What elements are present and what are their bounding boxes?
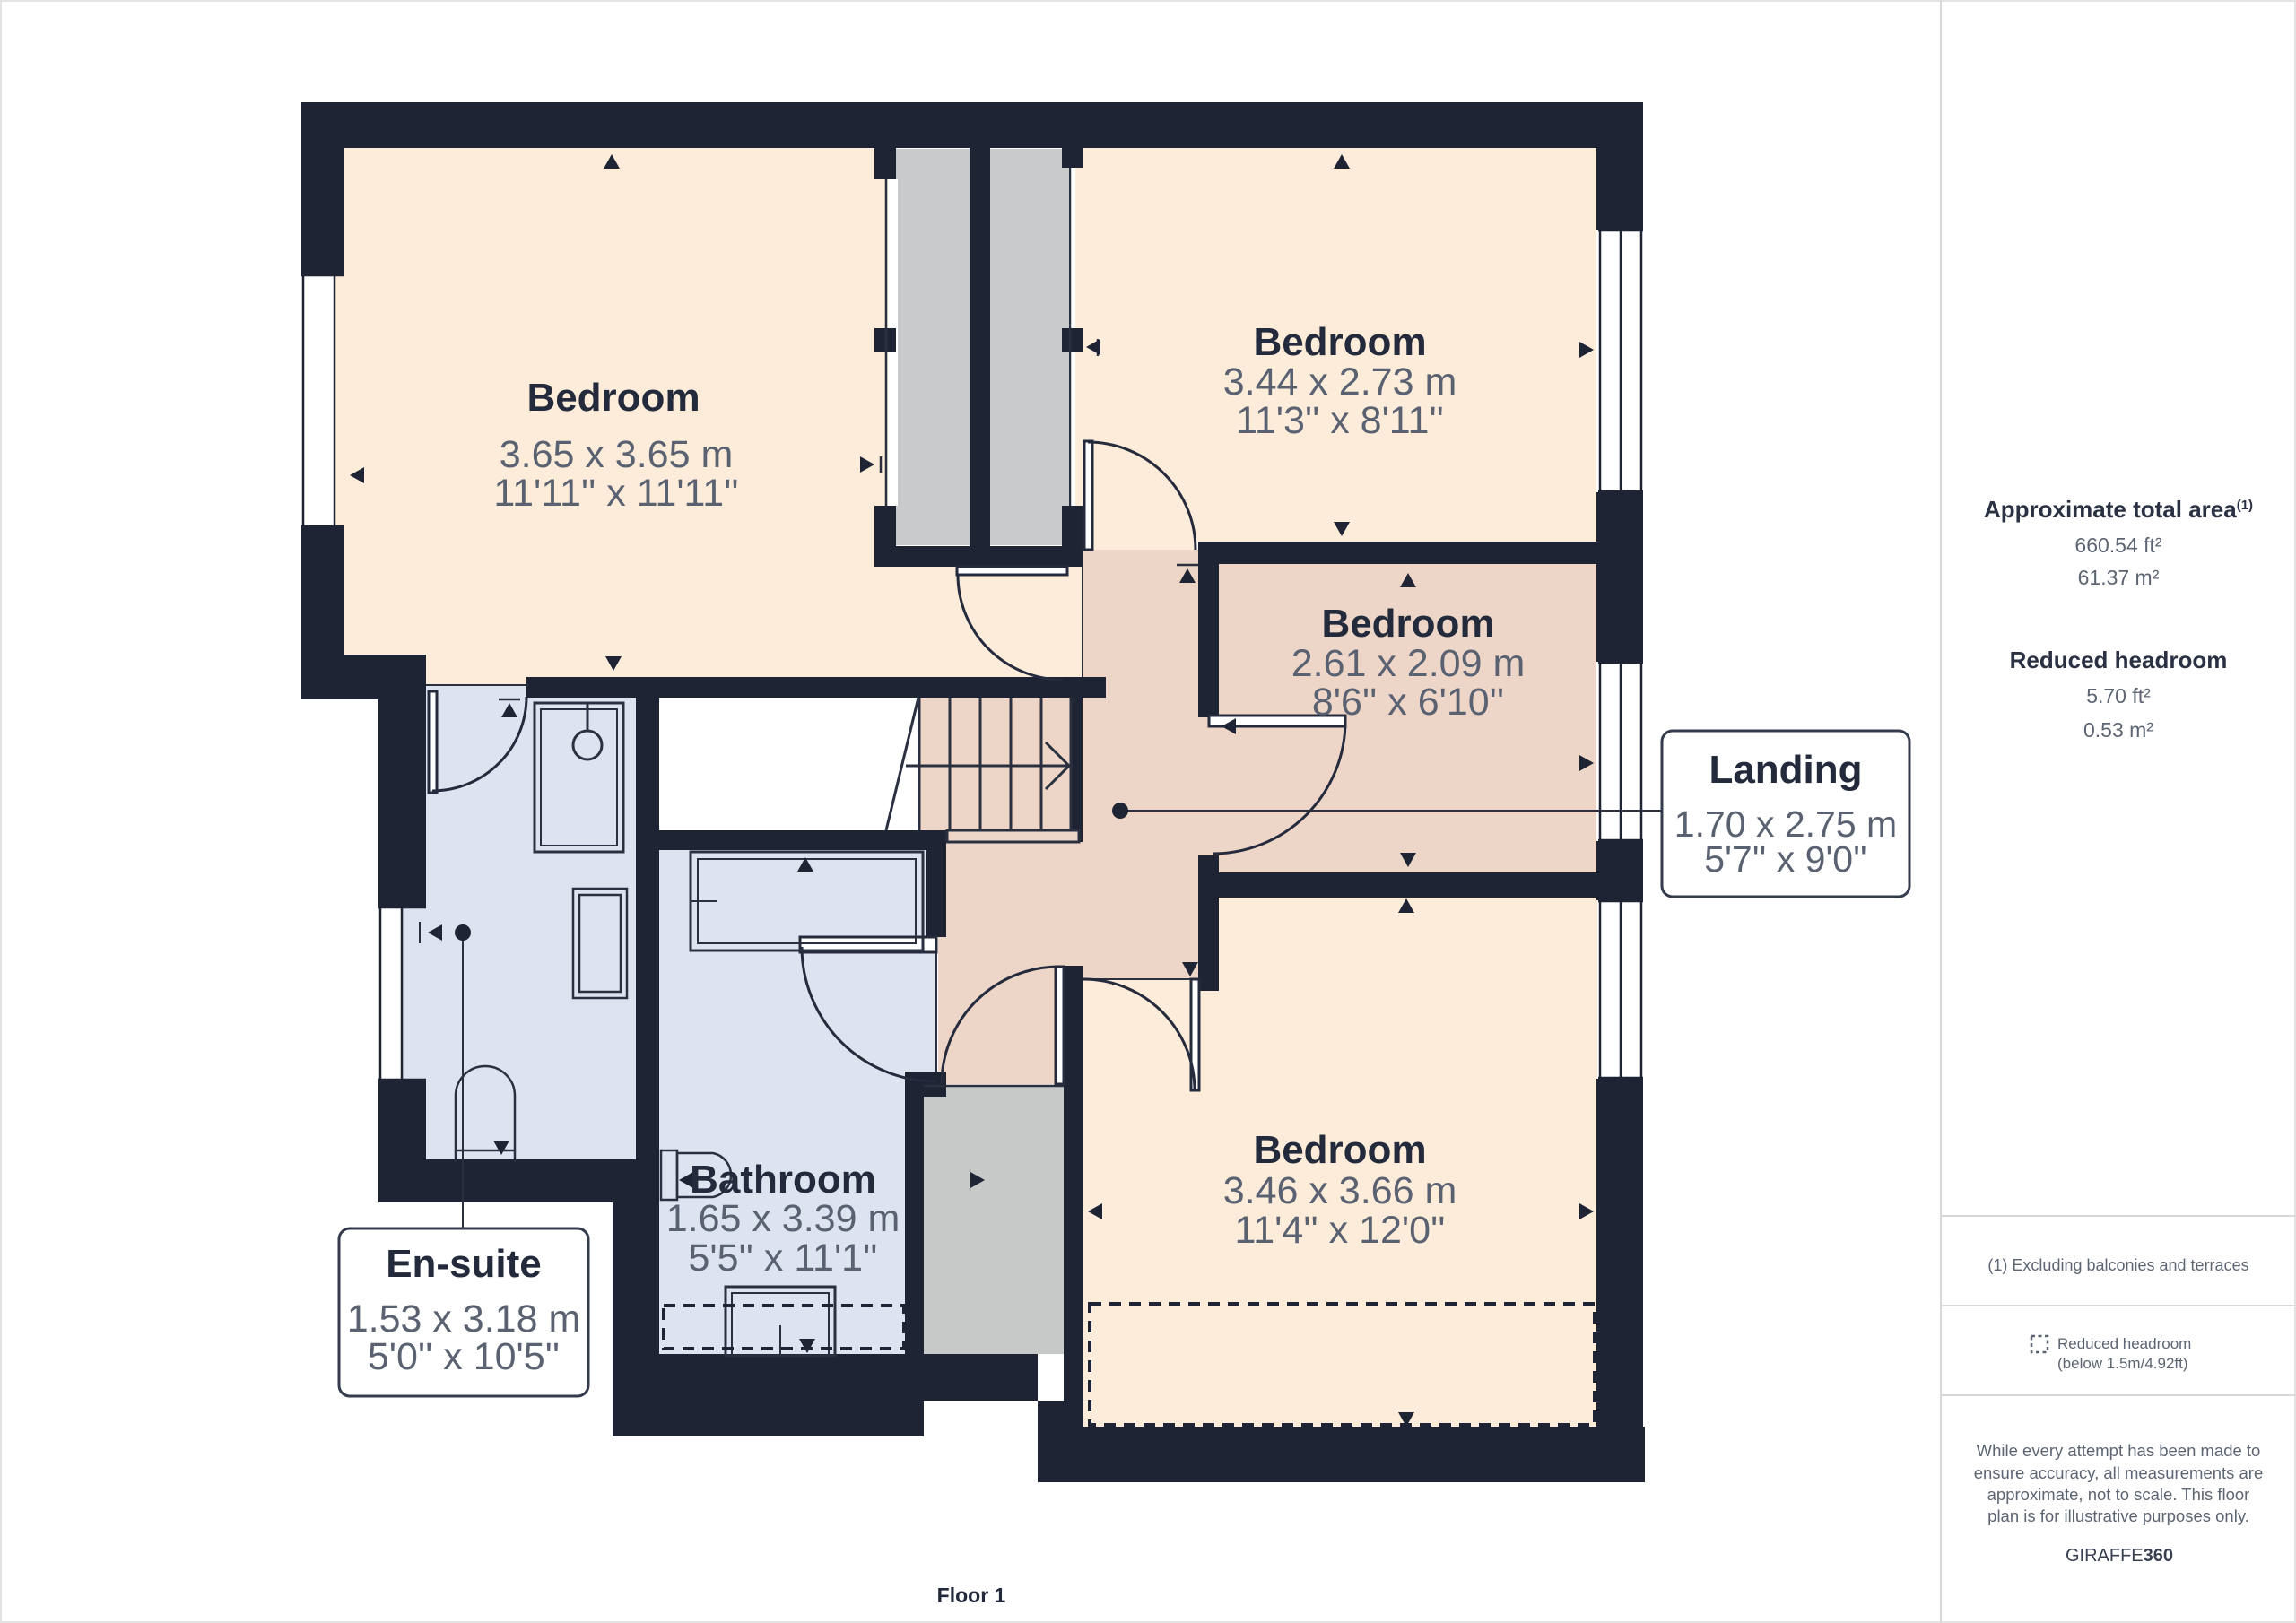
svg-text:5.70 ft²: 5.70 ft² <box>2086 684 2151 707</box>
svg-text:En-suite: En-suite <box>386 1242 542 1286</box>
svg-text:While every attempt has been m: While every attempt has been made to <box>1977 1441 2261 1460</box>
svg-text:GIRAFFE360: GIRAFFE360 <box>2066 1546 2173 1566</box>
svg-text:Bedroom: Bedroom <box>526 376 700 420</box>
svg-text:0.53 m²: 0.53 m² <box>2083 718 2153 742</box>
svg-text:ensure accuracy, all measureme: ensure accuracy, all measurements are <box>1974 1463 2264 1482</box>
svg-text:(1) Excluding balconies and te: (1) Excluding balconies and terraces <box>1987 1256 2248 1274</box>
svg-text:Bedroom: Bedroom <box>1253 320 1426 364</box>
svg-text:5'0'' x 10'5'': 5'0'' x 10'5'' <box>368 1335 560 1378</box>
svg-text:plan is for illustrative purpo: plan is for illustrative purposes only. <box>1987 1506 2249 1525</box>
svg-text:Bedroom: Bedroom <box>1253 1128 1426 1172</box>
svg-text:11'3'' x 8'11'': 11'3'' x 8'11'' <box>1236 399 1444 442</box>
svg-text:Bedroom: Bedroom <box>1321 602 1494 646</box>
svg-text:Landing: Landing <box>1709 748 1862 792</box>
svg-text:61.37 m²: 61.37 m² <box>2078 566 2160 589</box>
svg-text:Reduced headroom: Reduced headroom <box>2057 1335 2191 1352</box>
svg-text:11'11'' x 11'11'': 11'11'' x 11'11'' <box>493 472 738 515</box>
svg-text:660.54 ft²: 660.54 ft² <box>2074 534 2162 557</box>
svg-text:1.65 x 3.39 m: 1.65 x 3.39 m <box>666 1197 900 1240</box>
svg-text:Approximate total area(1): Approximate total area(1) <box>1984 496 2253 523</box>
svg-text:5'7'' x 9'0'': 5'7'' x 9'0'' <box>1704 838 1866 880</box>
svg-text:3.46 x 3.66 m: 3.46 x 3.66 m <box>1223 1169 1457 1212</box>
svg-text:Floor 1: Floor 1 <box>937 1584 1006 1607</box>
svg-text:3.65 x 3.65 m: 3.65 x 3.65 m <box>500 433 734 476</box>
svg-text:Bathroom: Bathroom <box>690 1158 876 1202</box>
svg-text:approximate, not to scale. Thi: approximate, not to scale. This floor <box>1987 1485 2250 1504</box>
svg-text:5'5'' x 11'1'': 5'5'' x 11'1'' <box>688 1237 877 1280</box>
svg-text:Reduced headroom: Reduced headroom <box>2010 647 2228 673</box>
svg-text:1.53 x 3.18 m: 1.53 x 3.18 m <box>347 1298 581 1341</box>
svg-text:11'4'' x 12'0'': 11'4'' x 12'0'' <box>1235 1209 1446 1252</box>
svg-text:2.61 x 2.09 m: 2.61 x 2.09 m <box>1291 642 1526 685</box>
svg-text:3.44 x 2.73 m: 3.44 x 2.73 m <box>1223 360 1457 404</box>
svg-text:8'6'' x 6'10'': 8'6'' x 6'10'' <box>1312 681 1504 724</box>
svg-text:(below 1.5m/4.92ft): (below 1.5m/4.92ft) <box>2057 1355 2188 1372</box>
